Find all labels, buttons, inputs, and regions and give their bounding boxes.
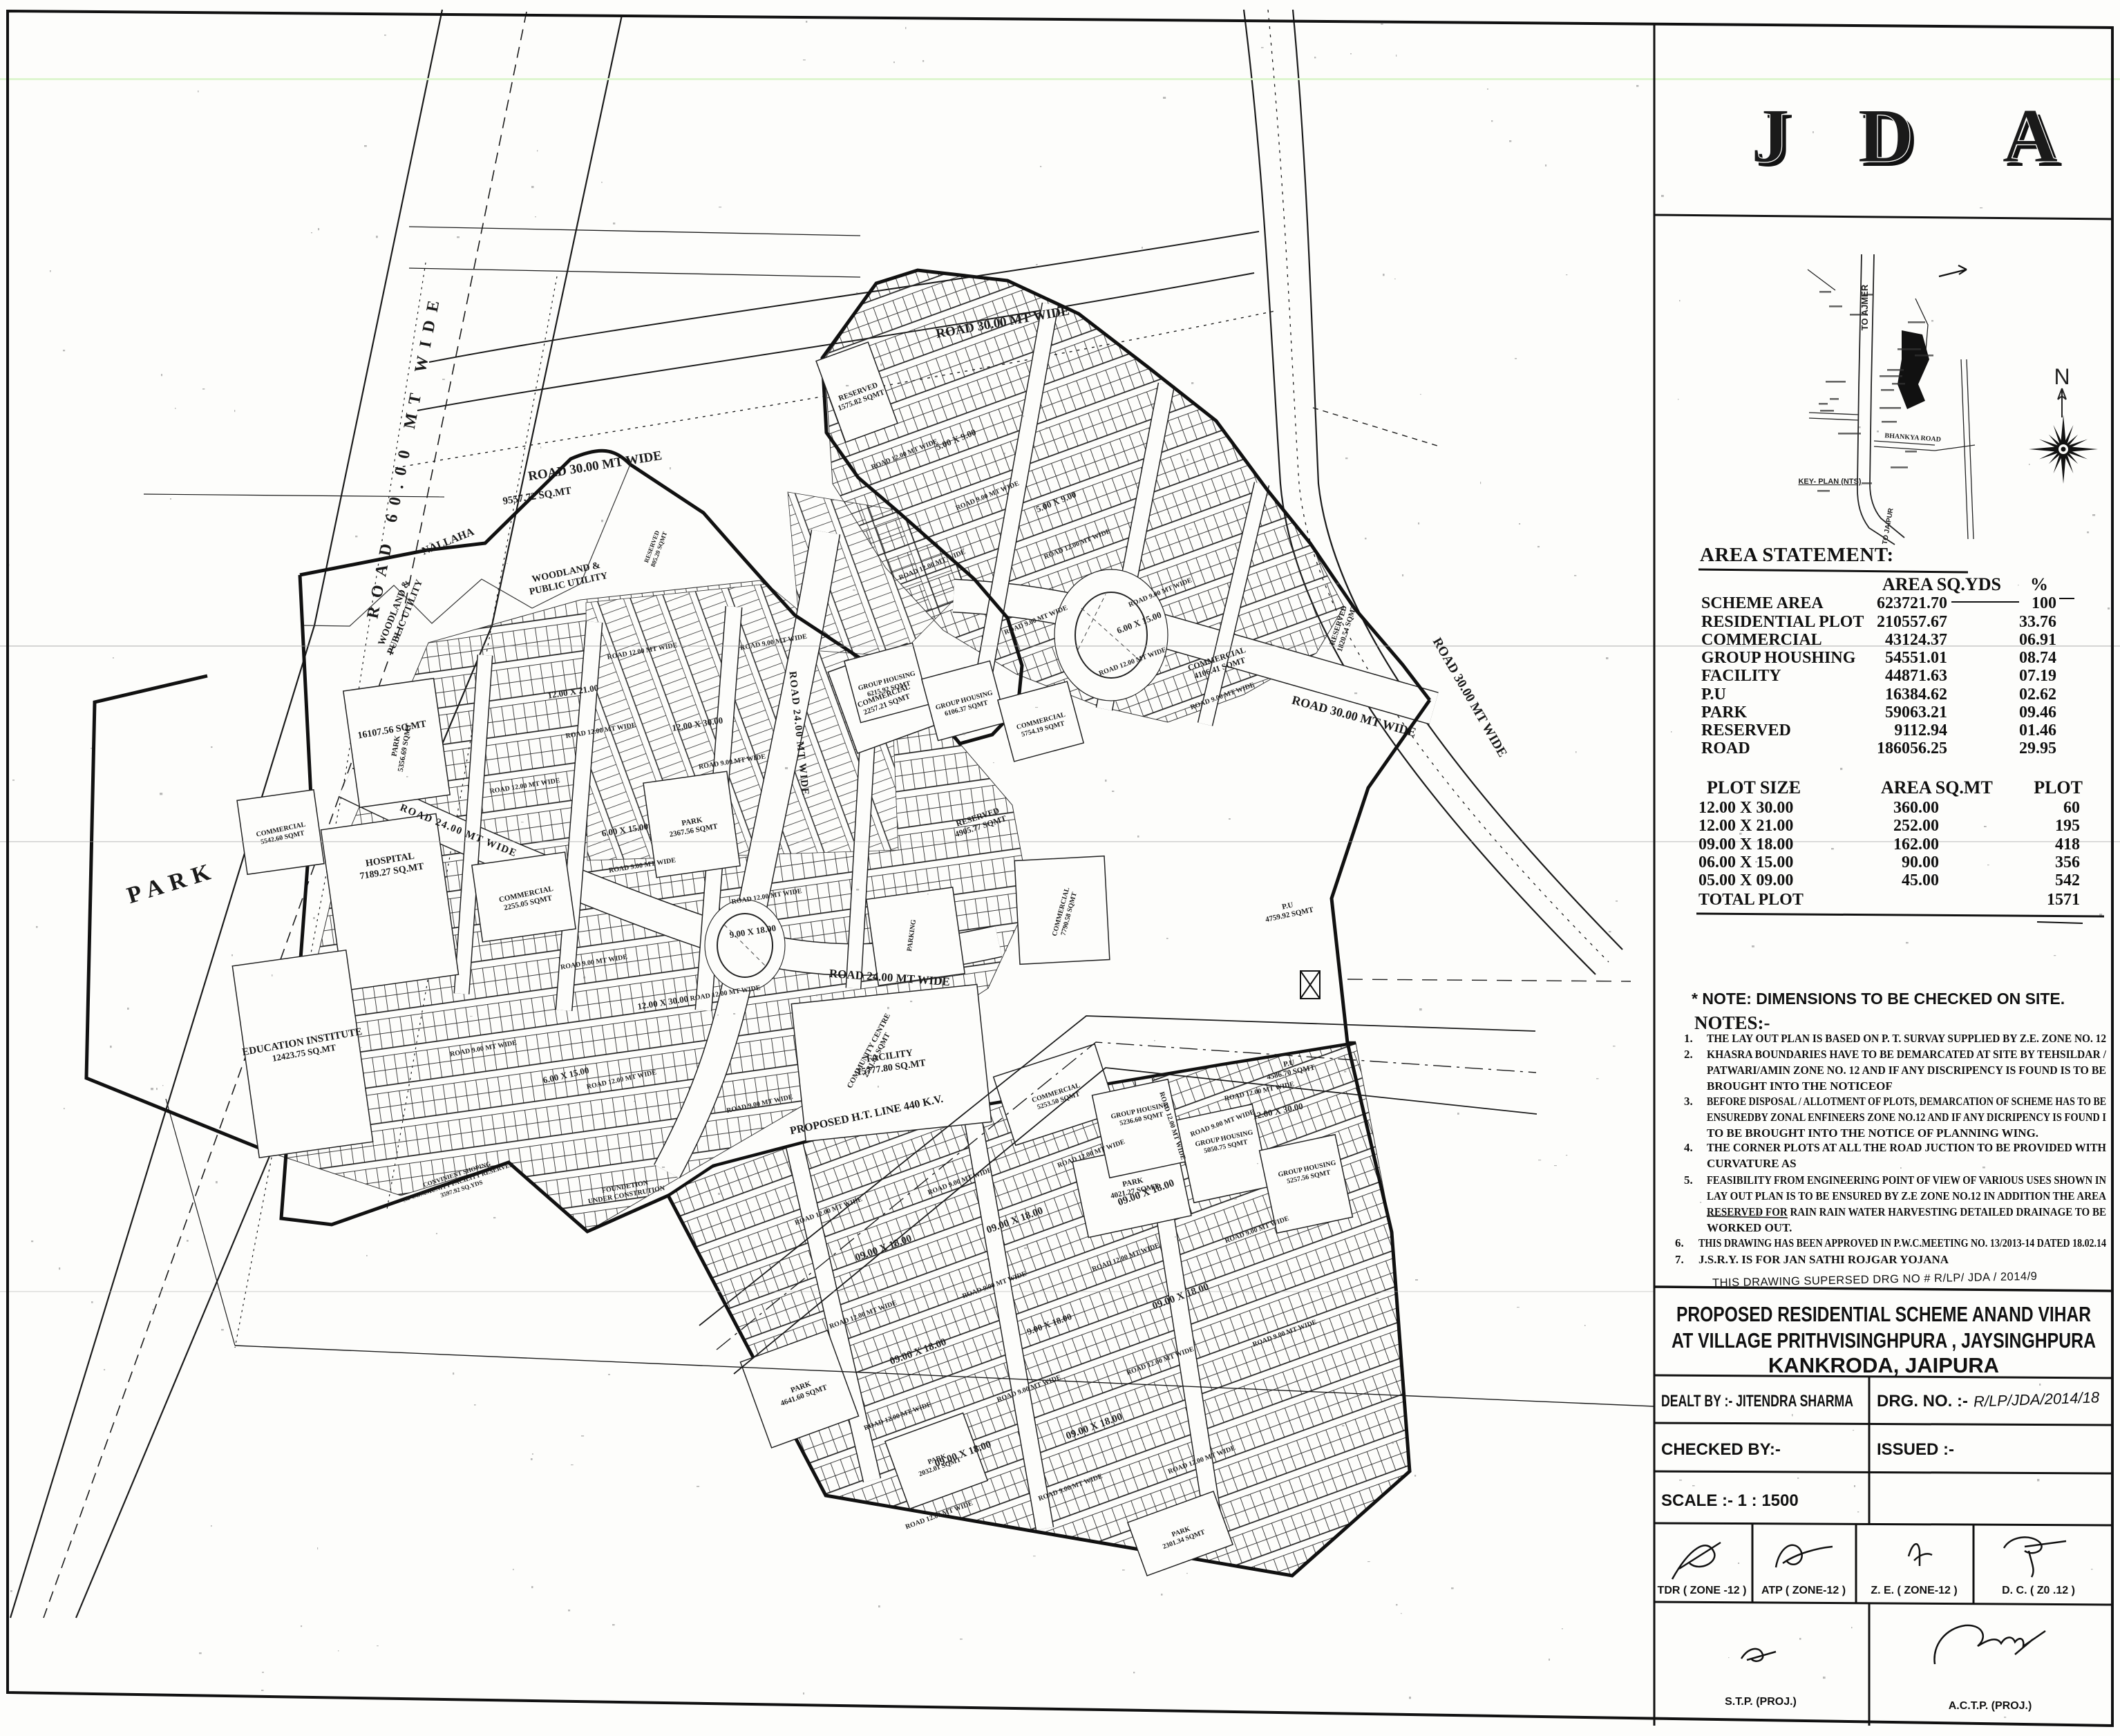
svg-text:6.: 6. [1675,1236,1684,1249]
svg-text:S.T.P. (PROJ.): S.T.P. (PROJ.) [1725,1696,1797,1708]
svg-text:06.00 X 15.00: 06.00 X 15.00 [1698,853,1793,871]
svg-text:PLOT: PLOT [2034,777,2083,798]
svg-text:33.76: 33.76 [2019,613,2056,631]
svg-text:THE CORNER PLOTS AT ALL THE R: THE CORNER PLOTS AT ALL THE ROAD JUCTION… [1707,1141,2106,1154]
svg-text:J: J [1751,93,1790,179]
svg-text:A: A [2003,93,2059,179]
svg-text:Z. E. ( ZONE-12 ): Z. E. ( ZONE-12 ) [1871,1585,1957,1596]
svg-text:12.00 X 21.00: 12.00 X 21.00 [1698,817,1793,835]
svg-text:* NOTE: DIMENSIONS TO BE CHECK: * NOTE: DIMENSIONS TO BE CHECKED ON SITE… [1692,990,2065,1008]
svg-text:5.: 5. [1684,1173,1693,1187]
svg-text:PLOT SIZE: PLOT SIZE [1707,777,1801,798]
svg-text:LAY OUT PLAN IS TO BE ENSURED: LAY OUT PLAN IS TO BE ENSURED BY Z.E ZON… [1707,1189,2107,1202]
svg-text:162.00: 162.00 [1893,836,1939,853]
svg-text:BROUGHT INTO THE NOTICEOF: BROUGHT INTO THE NOTICEOF [1707,1079,1893,1093]
svg-text:7.: 7. [1675,1253,1684,1266]
svg-text:GROUP HOUSHING: GROUP HOUSHING [1701,649,1856,667]
svg-text:FACILITY: FACILITY [1701,667,1781,685]
svg-text:100: 100 [2032,594,2056,612]
svg-text:RESERVED: RESERVED [1701,721,1791,739]
svg-text:A.C.T.P. (PROJ.): A.C.T.P. (PROJ.) [1949,1700,2032,1712]
svg-text:COMMERCIAL: COMMERCIAL [1701,631,1822,649]
svg-text:ISSUED :-: ISSUED :- [1877,1440,1954,1459]
svg-text:P.U: P.U [1701,686,1726,704]
svg-text:KHASRA BOUNDARIES HAVE TO BE: KHASRA BOUNDARIES HAVE TO BE DEMARCATED … [1707,1048,2106,1061]
svg-text:252.00: 252.00 [1893,817,1939,835]
svg-text:PATWARI/AMIN ZONE NO. 12 AND I: PATWARI/AMIN ZONE NO. 12 AND IF ANY DISC… [1707,1064,2106,1077]
svg-text:TOTAL PLOT: TOTAL PLOT [1698,891,1804,909]
svg-text:%: % [2030,574,2048,594]
svg-text:195: 195 [2055,817,2080,835]
svg-text:N: N [2054,364,2070,389]
svg-text:ATP ( ZONE-12 ): ATP ( ZONE-12 ) [1761,1585,1846,1596]
svg-text:AT VILLAGE PRITHVISINGHPURA ,: AT VILLAGE PRITHVISINGHPURA , JAYSINGHPU… [1672,1328,2096,1352]
svg-text:186056.25: 186056.25 [1877,739,1947,757]
svg-text:ENSUREDBY ZONAL ENFINEERS ZONE: ENSUREDBY ZONAL ENFINEERS ZONE NO.12 AND… [1707,1111,2106,1124]
svg-text:59063.21: 59063.21 [1885,704,1947,721]
svg-text:16384.62: 16384.62 [1885,686,1947,704]
svg-text:90.00: 90.00 [1902,853,1939,871]
svg-text:2.: 2. [1684,1048,1693,1061]
svg-text:D. C. ( Z0 .12 ): D. C. ( Z0 .12 ) [2002,1585,2075,1596]
svg-text:360.00: 360.00 [1893,799,1939,817]
svg-text:KANKRODA, JAIPURA: KANKRODA, JAIPURA [1768,1353,1999,1377]
svg-text:29.95: 29.95 [2019,739,2056,757]
svg-text:TO AJMER: TO AJMER [1859,284,1870,330]
svg-text:01.46: 01.46 [2019,721,2056,739]
svg-text:54551.01: 54551.01 [1885,649,1947,667]
svg-text:AREA STATEMENT:: AREA STATEMENT: [1700,544,1894,566]
svg-text:TO BE BROUGHT INTO THE NOTICE: TO BE BROUGHT INTO THE NOTICE OF PLANNIN… [1707,1126,2038,1140]
svg-text:07.19: 07.19 [2019,667,2056,685]
svg-text:PARK: PARK [1701,704,1748,721]
svg-text:WORKED OUT.: WORKED OUT. [1707,1221,1792,1234]
svg-text:FEASIBILITY FROM ENGINEERING P: FEASIBILITY FROM ENGINEERING POINT OF VI… [1707,1173,2107,1187]
svg-text:DRG. NO. :-: DRG. NO. :- [1877,1392,1968,1410]
svg-text:J.S.R.Y. IS FOR JAN SATHI ROJG: J.S.R.Y. IS FOR JAN SATHI ROJGAR YOJANA [1698,1253,1949,1266]
svg-text:AREA SQ.MT: AREA SQ.MT [1881,777,1993,798]
svg-text:1571: 1571 [2047,891,2080,909]
svg-text:NOTES:-: NOTES:- [1694,1012,1770,1033]
svg-text:60: 60 [2063,799,2080,817]
svg-text:THE LAY OUT PLAN IS BASED ON: THE LAY OUT PLAN IS BASED ON P. T. SURVA… [1707,1032,2106,1045]
svg-text:356: 356 [2055,853,2080,871]
svg-text:12.00 X 30.00: 12.00 X 30.00 [1698,799,1793,817]
svg-text:D: D [1858,93,1914,179]
svg-text:CURVATURE AS: CURVATURE AS [1707,1157,1797,1170]
svg-text:RESERVED FOR RAIN RAIN WATER: RESERVED FOR RAIN RAIN WATER HARVESTING … [1707,1205,2106,1218]
svg-text:4.: 4. [1684,1141,1693,1154]
svg-text:09.46: 09.46 [2019,704,2056,721]
svg-text:9112.94: 9112.94 [1894,721,1947,739]
svg-text:KEY- PLAN (NTS): KEY- PLAN (NTS) [1798,478,1861,486]
svg-text:542: 542 [2055,871,2080,889]
svg-text:THIS DRAWING HAS BEEN APPROVED: THIS DRAWING HAS BEEN APPROVED IN P.W.C.… [1698,1236,2106,1249]
svg-text:SCALE :- 1 : 1500: SCALE :- 1 : 1500 [1661,1491,1799,1510]
svg-text:43124.37: 43124.37 [1885,631,1947,649]
svg-text:09.00 X 18.00: 09.00 X 18.00 [1698,836,1793,853]
svg-text:06.91: 06.91 [2019,631,2056,649]
svg-text:08.74: 08.74 [2019,649,2056,667]
svg-text:TDR ( ZONE -12 ): TDR ( ZONE -12 ) [1658,1585,1747,1596]
svg-text:BEFORE DISPOSAL / ALLOTMENT OF: BEFORE DISPOSAL / ALLOTMENT OF PLOTS, DE… [1707,1095,2106,1108]
svg-text:02.62: 02.62 [2019,686,2056,704]
svg-text:RESIDENTIAL PLOT: RESIDENTIAL PLOT [1701,613,1864,631]
svg-text:05.00 X 09.00: 05.00 X 09.00 [1698,871,1793,889]
svg-text:AREA SQ.YDS: AREA SQ.YDS [1882,574,2001,594]
svg-text:418: 418 [2055,836,2080,853]
svg-text:210557.67: 210557.67 [1877,613,1947,631]
svg-text:ROAD: ROAD [1701,739,1750,757]
svg-text:SCHEME AREA: SCHEME AREA [1701,594,1824,612]
svg-text:DEALT BY :- JITENDRA SHARMA: DEALT BY :- JITENDRA SHARMA [1661,1392,1853,1410]
svg-text:44871.63: 44871.63 [1885,667,1947,685]
svg-text:623721.70: 623721.70 [1877,594,1947,612]
svg-text:PROPOSED RESIDENTIAL SCHEME AN: PROPOSED RESIDENTIAL SCHEME ANAND VIHAR [1676,1302,2091,1326]
svg-text:3.: 3. [1684,1095,1693,1108]
svg-text:CHECKED BY:-: CHECKED BY:- [1661,1440,1781,1459]
svg-text:45.00: 45.00 [1902,871,1939,889]
svg-text:1.: 1. [1684,1032,1693,1045]
